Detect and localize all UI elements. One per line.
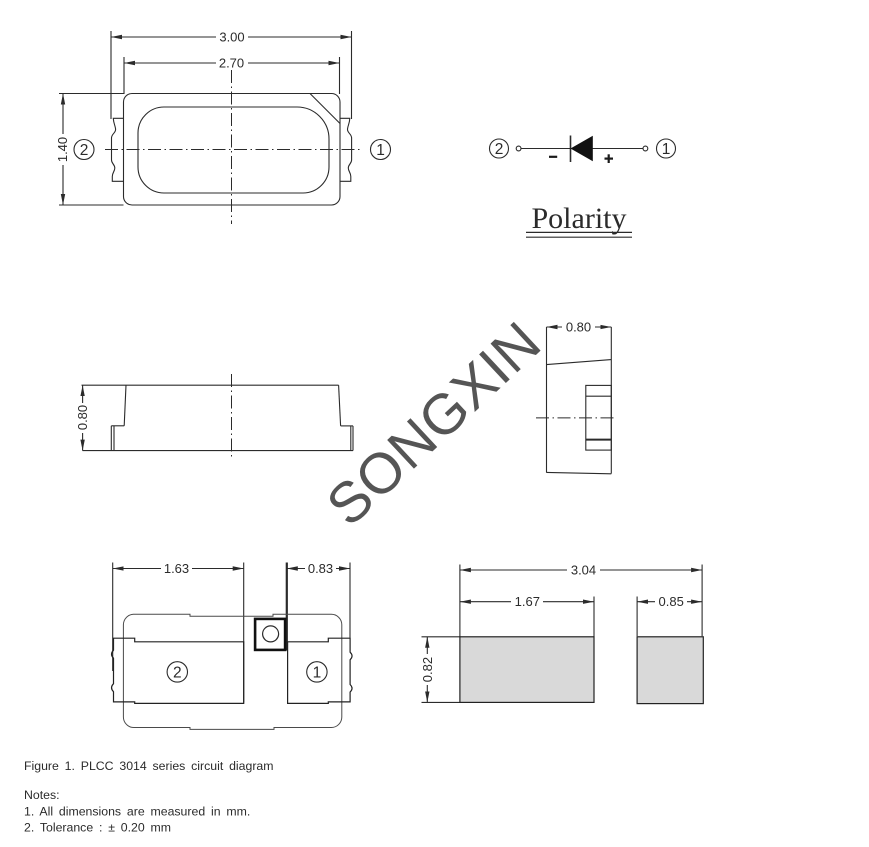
svg-text:1: 1 [662,141,671,158]
svg-text:0.80: 0.80 [75,405,90,430]
svg-text:3.04: 3.04 [571,562,596,577]
svg-text:2. Tolerance : ± 0.20 mm: 2. Tolerance : ± 0.20 mm [24,821,171,835]
svg-text:1.40: 1.40 [55,137,70,162]
svg-text:2: 2 [495,141,504,158]
svg-text:1.63: 1.63 [164,561,189,576]
svg-text:0.80: 0.80 [566,319,591,334]
svg-text:0.82: 0.82 [420,657,435,682]
svg-text:2: 2 [80,142,89,159]
svg-text:1: 1 [313,664,322,681]
svg-text:SONGXIN: SONGXIN [315,310,553,538]
svg-text:1: 1 [376,142,385,159]
svg-text:0.85: 0.85 [659,594,684,609]
svg-text:1.67: 1.67 [515,594,540,609]
svg-text:0.83: 0.83 [308,561,333,576]
svg-text:Notes:: Notes: [24,788,60,802]
svg-text:2: 2 [173,664,182,681]
svg-text:3.00: 3.00 [219,30,244,45]
svg-text:Polarity: Polarity [532,202,627,235]
svg-text:Figure 1. PLCC 3014 series cir: Figure 1. PLCC 3014 series circuit diagr… [24,759,274,773]
svg-text:1. All dimensions are measured: 1. All dimensions are measured in mm. [24,805,250,819]
svg-text:2.70: 2.70 [219,56,244,71]
